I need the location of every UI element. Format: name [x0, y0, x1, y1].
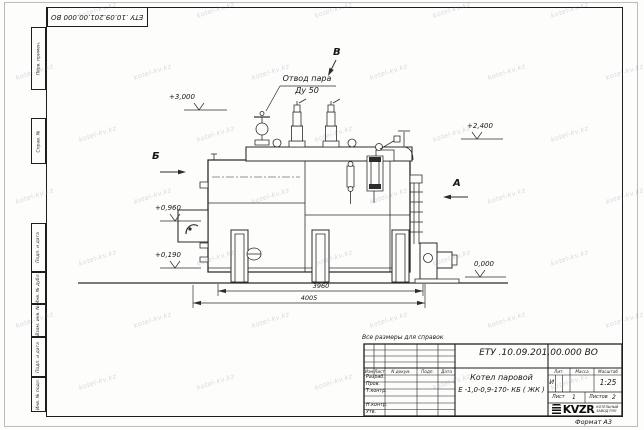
tb-col-data: Дата — [438, 370, 455, 374]
tb-sheet-label: Лист — [552, 395, 565, 400]
tb-row-prov: Пров. — [366, 383, 380, 388]
tb-lit-header: Лит. — [548, 370, 570, 374]
format-label: Формат А3 — [565, 419, 622, 426]
tb-row-tkontr: Т.контр. — [366, 390, 387, 395]
tb-sheets-value: 2 — [612, 395, 616, 401]
elevation-0000: 0,000 — [462, 261, 506, 268]
tb-col-izm: Изм — [364, 370, 374, 374]
top-corner-stamp: ЕТУ .10.09.201.00.000 ВО — [47, 7, 148, 27]
view-letter-b: Б — [152, 152, 160, 162]
elevation-2400: +2,400 — [458, 123, 502, 130]
side-cell-podp-data-1: Подп. и дата — [31, 223, 46, 272]
dimension-4005: 4005 — [288, 295, 330, 302]
tb-mass-header: Масса — [570, 370, 594, 374]
side-cell-sprav-no: Справ. № — [31, 118, 46, 164]
tb-row-razrab: Разраб. — [366, 376, 385, 381]
tb-col-list: Лист — [374, 370, 385, 374]
callout-steam-outlet-line2: Ду 50 — [276, 87, 338, 95]
kvzr-logo-text: KVZR — [563, 403, 594, 416]
reference-note: Все размеры для справок — [362, 335, 443, 341]
title-block-designation: ЕТУ .10.09.201.00.000 ВО — [456, 349, 621, 358]
side-cell-inv-dubl: Инв. № дубл. — [31, 272, 46, 304]
tb-lit-value: И — [548, 379, 555, 386]
elevation-3000: +3,000 — [160, 94, 204, 101]
tb-sheets-label: Листов — [589, 395, 608, 400]
view-letter-a: А — [453, 179, 461, 189]
tb-col-podp: Подп. — [417, 370, 438, 374]
drawing-sheet: ЕТУ .10.09.201.00.000 ВО Перв. примен. С… — [0, 0, 644, 430]
elevation-0190: +0,190 — [146, 252, 190, 259]
title-block-name-line1: Котел паровой — [456, 374, 547, 382]
side-cell-vzam-inv: Взам. инв. № — [31, 304, 46, 337]
side-cell-perv-primen: Перв. примен. — [31, 27, 46, 90]
kvzr-logo-subtext: КОТЕЛЬНЫЙ ЗАВОД РЭП — [596, 406, 618, 414]
side-cell-inv-podl: Инв. № подл. — [31, 377, 46, 412]
tb-row-nkontr: Н.контр. — [366, 404, 387, 409]
top-stamp-text: ЕТУ .10.09.201.00.000 ВО — [51, 13, 143, 21]
tb-row-utv: Утв. — [366, 411, 376, 416]
kvzr-logo: KVZR КОТЕЛЬНЫЙ ЗАВОД РЭП — [549, 404, 621, 415]
callout-steam-outlet-line1: Отвод пара — [276, 75, 338, 83]
title-block-name-line2: Е -1,0-0,9-170- КБ ( ЖК ) — [456, 387, 547, 394]
tb-sheet-value: 1 — [572, 395, 576, 401]
tb-scale-header: Масштаб — [594, 370, 622, 374]
kvzr-emblem-icon — [552, 404, 561, 415]
view-letter-v: В — [333, 48, 341, 58]
tb-col-ndokum: N докум. — [385, 370, 417, 374]
dimension-3960: 3960 — [300, 283, 342, 290]
tb-scale-value: 1:25 — [594, 379, 622, 387]
side-cell-podp-data-2: Подп. и дата — [31, 337, 46, 377]
elevation-0960: +0,960 — [146, 205, 190, 212]
